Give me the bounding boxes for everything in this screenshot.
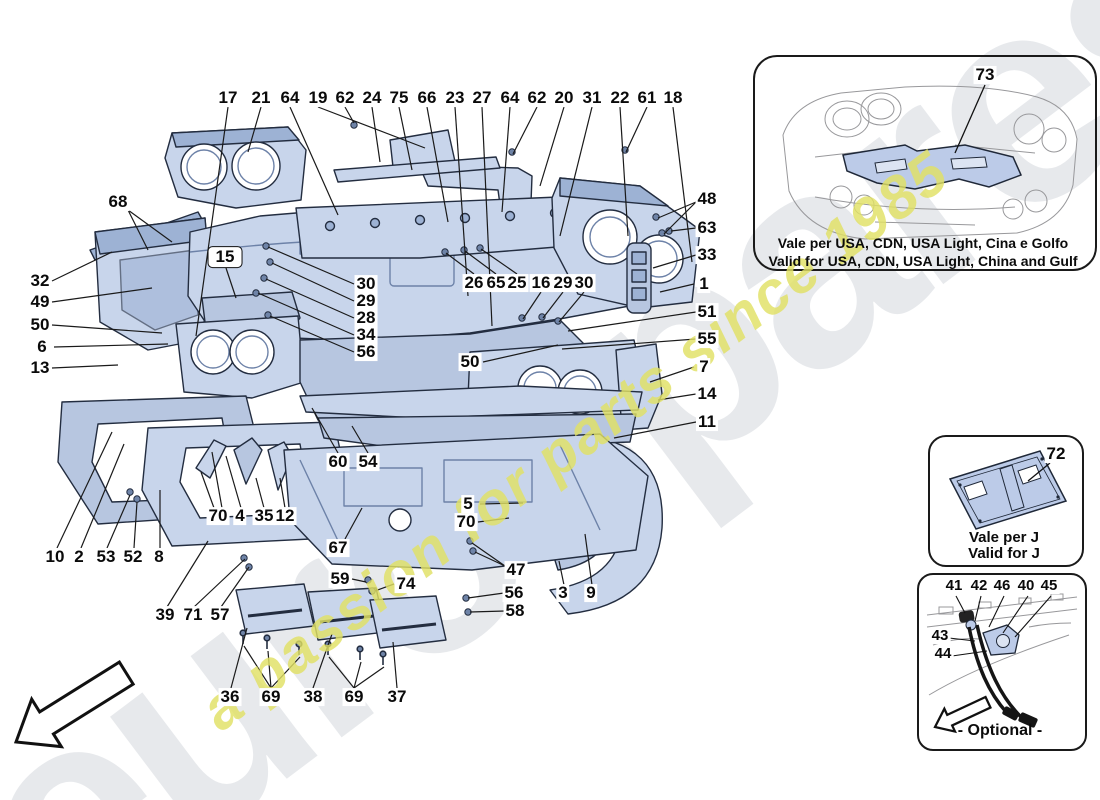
callout-69b: 69 xyxy=(343,688,366,706)
callout-6: 6 xyxy=(35,338,48,356)
callout-42: 42 xyxy=(969,578,990,594)
callout-29b: 29 xyxy=(552,274,575,292)
callout-21: 21 xyxy=(250,89,273,107)
callout-10: 10 xyxy=(44,548,67,566)
callout-9: 9 xyxy=(584,584,597,602)
callout-5: 5 xyxy=(461,495,474,513)
callout-36: 36 xyxy=(219,688,242,706)
callout-19: 19 xyxy=(307,89,330,107)
callout-71: 71 xyxy=(182,606,205,624)
callout-31: 31 xyxy=(581,89,604,107)
callout-59: 59 xyxy=(329,570,352,588)
callout-58: 58 xyxy=(504,602,527,620)
callout-22: 22 xyxy=(609,89,632,107)
diagram-canvas: eurospares xyxy=(0,0,1100,800)
part-lid-3 xyxy=(370,596,446,648)
callout-18: 18 xyxy=(662,89,685,107)
part-lid-1 xyxy=(236,584,314,634)
callout-68: 68 xyxy=(107,193,130,211)
inset-usa-caption-it: Vale per USA, CDN, USA Light, Cina e Gol… xyxy=(753,234,1093,252)
callout-57: 57 xyxy=(209,606,232,624)
callout-48: 48 xyxy=(696,190,719,208)
callout-49: 49 xyxy=(29,293,52,311)
callout-50b: 50 xyxy=(459,353,482,371)
callout-16: 16 xyxy=(530,274,553,292)
direction-arrow-icon xyxy=(1,649,141,765)
callout-40: 40 xyxy=(1016,578,1037,594)
callout-62: 62 xyxy=(334,89,357,107)
callout-51: 51 xyxy=(696,303,719,321)
callout-60: 60 xyxy=(327,453,350,471)
callout-15-boxed: 15 xyxy=(208,246,243,268)
callout-27: 27 xyxy=(471,89,494,107)
callout-50: 50 xyxy=(29,316,52,334)
callout-55: 55 xyxy=(696,330,719,348)
inset-usa-caption-en: Valid for USA, CDN, USA Light, China and… xyxy=(753,252,1093,270)
callout-70: 70 xyxy=(207,507,230,525)
callout-11: 11 xyxy=(696,413,718,431)
callout-56b: 56 xyxy=(503,584,526,602)
callout-24: 24 xyxy=(361,89,384,107)
callout-54: 54 xyxy=(357,453,380,471)
inset-j-caption-en: Valid for J xyxy=(928,546,1080,562)
callout-13: 13 xyxy=(29,359,52,377)
callout-74: 74 xyxy=(395,575,418,593)
callout-1: 1 xyxy=(697,275,710,293)
callout-33: 33 xyxy=(696,246,719,264)
callout-41: 41 xyxy=(944,578,965,594)
callout-63: 63 xyxy=(696,219,719,237)
callout-75: 75 xyxy=(388,89,411,107)
callout-3: 3 xyxy=(556,584,569,602)
callout-30b: 30 xyxy=(573,274,596,292)
callout-7: 7 xyxy=(697,358,710,376)
callout-73: 73 xyxy=(974,66,997,84)
inset-optional-caption: - Optional - xyxy=(917,722,1083,740)
inset-usa-part-73 xyxy=(843,145,1021,189)
bumper-parts xyxy=(58,127,700,648)
callout-70b: 70 xyxy=(455,513,478,531)
callout-4: 4 xyxy=(233,507,246,525)
inset-j-caption-it: Vale per J xyxy=(928,530,1080,546)
callout-2: 2 xyxy=(72,548,85,566)
callout-53: 53 xyxy=(95,548,118,566)
callout-64: 64 xyxy=(279,89,302,107)
callout-72: 72 xyxy=(1045,445,1068,463)
callout-62b: 62 xyxy=(526,89,549,107)
callout-45: 45 xyxy=(1039,578,1060,594)
callout-12: 12 xyxy=(274,507,297,525)
callout-66: 66 xyxy=(416,89,439,107)
callout-38: 38 xyxy=(302,688,325,706)
callout-17: 17 xyxy=(217,89,240,107)
callout-52: 52 xyxy=(122,548,145,566)
callout-56: 56 xyxy=(355,343,378,361)
callout-43: 43 xyxy=(930,628,951,644)
callout-8: 8 xyxy=(152,548,165,566)
callout-26: 26 xyxy=(463,274,486,292)
callout-25: 25 xyxy=(506,274,529,292)
callout-67: 67 xyxy=(327,539,350,557)
callout-61: 61 xyxy=(636,89,659,107)
callout-14: 14 xyxy=(696,385,719,403)
callout-35: 35 xyxy=(253,507,276,525)
callout-39: 39 xyxy=(154,606,177,624)
callout-23: 23 xyxy=(444,89,467,107)
callout-37: 37 xyxy=(386,688,409,706)
callout-64b: 64 xyxy=(499,89,522,107)
callout-47: 47 xyxy=(505,561,528,579)
callout-65: 65 xyxy=(485,274,508,292)
callout-44: 44 xyxy=(933,646,954,662)
callout-69: 69 xyxy=(260,688,283,706)
callout-46: 46 xyxy=(992,578,1013,594)
callout-32: 32 xyxy=(29,272,52,290)
callout-20: 20 xyxy=(553,89,576,107)
